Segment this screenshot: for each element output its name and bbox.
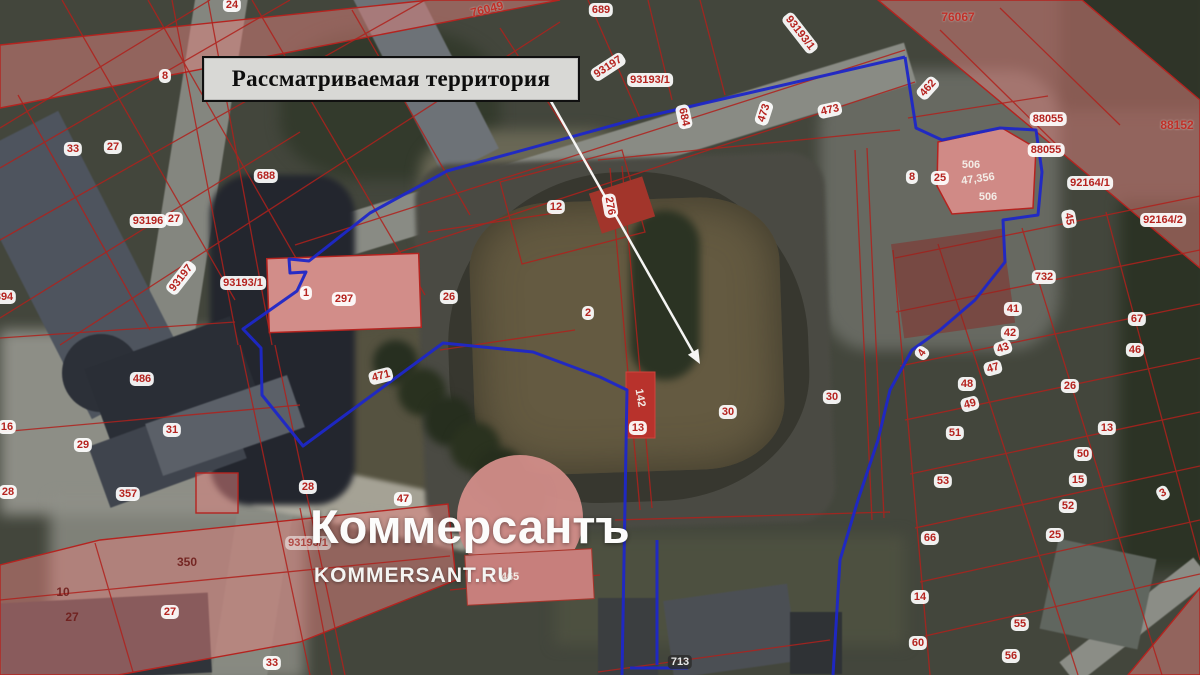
parcel-label: 27 [161,605,179,619]
parcel-label: 27 [165,212,183,226]
cadastral-overlay [0,0,1200,675]
parcel-label: 13 [1098,421,1116,435]
parcel-label: 28 [299,480,317,494]
parcel-label: 25 [931,171,949,185]
parcel-label: 350 [177,555,197,569]
parcel-label: 67 [1128,312,1146,326]
parcel-label: 26 [440,290,458,304]
parcel-label: 45 [1061,209,1078,229]
parcel-label: 66 [921,531,939,545]
parcel-label: 10 [56,585,69,599]
parcel-label: 713 [668,655,692,669]
parcel-label: 297 [332,292,356,306]
parcel-label: 689 [589,3,613,17]
parcel-label: 60 [909,636,927,650]
parcel-label: 28 [0,485,17,499]
parcel-label: 33 [263,656,281,670]
parcel-label: 51 [946,426,964,440]
parcel-label: 93196 [130,214,167,228]
parcel-label: 30 [719,405,737,419]
parcel-label: 732 [1032,270,1056,284]
parcel-label: 27 [104,140,122,154]
parcel-label: 12 [547,200,565,214]
parcel-label: 88055 [1030,112,1067,126]
parcel-label: 76067 [941,10,974,24]
parcel-label: 394 [0,290,16,304]
parcel-label: 56 [1002,649,1020,663]
parcel-label: 48 [958,377,976,391]
parcel-label: 8 [159,69,171,83]
parcel-label: 53 [934,474,952,488]
parcel-label: 24 [223,0,241,12]
parcel-label: 506 [979,190,997,204]
parcel-label: 2 [582,306,594,320]
parcel-label: 93193/1 [220,276,266,290]
parcel-label: 27 [65,610,78,624]
parcel-label: 52 [1059,499,1077,513]
parcel-label: 31 [163,423,181,437]
parcel-label: 92164/2 [1140,213,1186,227]
parcel-label: 142 [632,388,649,409]
parcel-label: 41 [1004,302,1022,316]
parcel-label: 14 [911,590,929,604]
annotation-box: Рассматриваемая территория [202,56,580,102]
pink-zones [0,0,1200,675]
parcel-label: 55 [1011,617,1029,631]
parcel-label: 42 [1001,326,1019,340]
parcel-label: 93193/1 [627,73,673,87]
parcel-label: 29 [74,438,92,452]
parcel-label: 506 [962,158,980,172]
parcel-label: 30 [823,390,841,404]
parcel-label: 357 [116,487,140,501]
parcel-label: 92164/1 [1067,176,1113,190]
parcel-label: 26 [1061,379,1079,393]
parcel-label: 50 [1074,447,1092,461]
parcel-label: 486 [130,372,154,386]
parcel-label: 13 [629,421,647,435]
parcel-label: 88055 [1028,143,1065,157]
parcel-label: 88152 [1160,118,1193,132]
parcel-label: 15 [1069,473,1087,487]
parcel-label: 16 [0,420,16,434]
parcel-label: 46 [1126,343,1144,357]
parcel-label: 25 [1046,528,1064,542]
kommersant-logo: Коммерсантъ [310,499,630,554]
parcel-label: 33 [64,142,82,156]
parcel-label: 1 [300,286,312,300]
parcel-label: 688 [254,169,278,183]
kommersant-site-url: KOMMERSANT.RU [314,564,514,588]
parcel-label: 8 [906,170,918,184]
annotation-text: Рассматриваемая территория [232,66,550,92]
satellite-cadastral-map: 24760496897606793193/189319793193/146247… [0,0,1200,675]
